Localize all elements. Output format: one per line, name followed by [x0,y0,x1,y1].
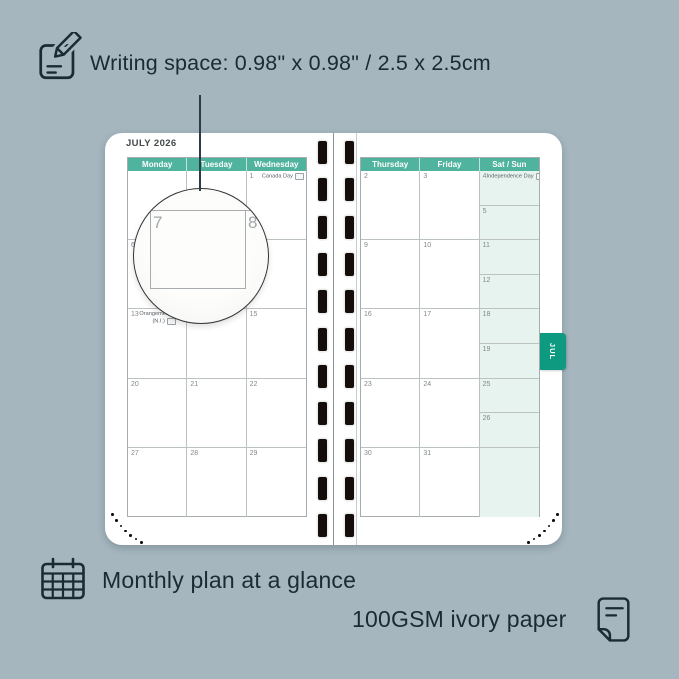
stitch-dot [129,534,132,537]
calendar-cell: 22 [247,379,306,448]
binding-slot [318,253,327,276]
month-tab-label: JUL [548,343,557,360]
weekend-cell: 4Independence Day5 [480,171,539,240]
binding-slot [318,477,327,500]
calendar-cell: 21 [187,379,246,448]
date-number: 28 [190,450,198,457]
stitch-dot [543,530,546,533]
planner-product-infographic: Writing space: 0.98" x 0.98" / 2.5 x 2.5… [0,0,679,679]
stitch-dot [111,513,114,516]
weekend-cell: 1112 [480,240,539,309]
left-day-headers: MondayTuesdayWednesday [128,158,306,171]
magnified-day-number: 7 [153,213,162,233]
date-number: 15 [250,311,258,318]
calendar-cell: 15 [247,309,306,378]
date-number: 27 [131,450,139,457]
stitch-dot [527,541,530,544]
binding-slot [318,514,327,537]
paper-quality-label: 100GSM ivory paper [352,606,567,633]
binding-slot [345,514,354,537]
month-title: JULY 2026 [126,138,177,149]
binding-slot [345,439,354,462]
binding-slot [345,477,354,500]
date-number: 11 [483,242,490,249]
day-header: Tuesday [187,158,246,171]
day-header: Thursday [361,158,420,171]
sunday-cell: 12 [480,275,539,309]
date-number: 22 [250,381,258,388]
date-number: 21 [190,381,198,388]
right-calendar-table: ThursdayFridaySat / Sun 234Independence … [360,157,540,517]
stitch-dot [115,519,118,522]
date-number: 17 [423,311,431,318]
binding-slot [318,439,327,462]
stitch-dot [552,519,555,522]
gutter-line-left [333,133,334,545]
stitch-dot [140,541,143,544]
day-header: Sat / Sun [480,158,539,171]
saturday-cell: 11 [480,240,539,275]
calendar-cell: 20 [128,379,187,448]
binding-slot [318,402,327,425]
saturday-cell: 25 [480,379,539,414]
calendar-cell: 24 [420,379,479,448]
binding-slot [345,365,354,388]
calendar-cell: 30 [361,448,420,517]
stitch-dot [124,530,127,533]
weekend-cell: 1819 [480,309,539,378]
calendar-cell: 3 [420,171,479,240]
saturday-cell: 18 [480,309,539,344]
date-number: 23 [364,381,372,388]
binding-slot [345,178,354,201]
writing-space-label: Writing space: 0.98" x 0.98" / 2.5 x 2.5… [90,51,491,76]
binding-slot [345,328,354,351]
date-number: 20 [131,381,139,388]
holiday-label: Canada Day [262,173,304,180]
date-number: 9 [364,242,368,249]
binding-slot [345,253,354,276]
holiday-label: Independence Day [487,173,539,180]
day-header: Wednesday [247,158,306,171]
right-calendar-grid: 234Independence Day591011121617181923242… [361,171,539,517]
calendar-cell: 17 [420,309,479,378]
monthly-plan-label: Monthly plan at a glance [102,567,356,594]
calendar-cell: 29 [247,448,306,517]
calendar-cell: 16 [361,309,420,378]
calendar-cell: 28 [187,448,246,517]
stitch-dot [538,534,541,537]
sunday-cell: 5 [480,206,539,240]
magnifier-circle: 7 8 [133,188,269,324]
binding-slot [318,290,327,313]
date-number: 1 [250,173,254,180]
date-number: 5 [483,208,487,215]
date-number: 31 [423,450,431,457]
binding-slot [345,290,354,313]
calendar-cell: 2 [361,171,420,240]
binding-slot [318,365,327,388]
binding-slot [318,178,327,201]
calendar-cell: 9 [361,240,420,309]
note-pencil-icon [38,32,84,84]
saturday-cell: 4Independence Day [480,171,539,206]
date-number: 24 [423,381,431,388]
calendar-cell: 10 [420,240,479,309]
magnified-grid-line [246,210,268,211]
month-tab: JUL [540,333,566,370]
date-number: 30 [364,450,372,457]
calendar-grid-icon [40,557,86,601]
calendar-cell: 31 [420,448,479,517]
calendar-cell: 23 [361,379,420,448]
date-number: 2 [364,173,368,180]
binding-slot [318,328,327,351]
date-number: 19 [483,346,491,353]
date-number: 3 [423,173,427,180]
magnified-next-day-number: 8 [248,213,257,233]
binding-slot [318,216,327,239]
holiday-flag-badge [536,173,539,180]
gutter-line-right [356,133,357,545]
date-number: 29 [250,450,258,457]
binding-slot [318,141,327,164]
day-header: Monday [128,158,187,171]
paper-sheet-icon [596,596,631,643]
date-number: 12 [483,277,491,284]
holiday-flag-badge [167,318,176,325]
stitch-dot [556,513,559,516]
day-header: Friday [420,158,479,171]
weekend-cell: 2526 [480,379,539,448]
binding-slot [345,141,354,164]
writing-space-box [150,210,246,289]
date-number: 26 [483,415,491,422]
connector-line [199,95,201,191]
right-day-headers: ThursdayFridaySat / Sun [361,158,539,171]
holiday-flag-badge [295,173,304,180]
calendar-cell: 27 [128,448,187,517]
sunday-cell: 26 [480,413,539,447]
date-number: 10 [423,242,431,249]
binding-slot [345,216,354,239]
sunday-cell: 19 [480,344,539,378]
date-number: 25 [483,381,491,388]
date-number: 13 [131,311,139,318]
weekend-cell [480,448,539,517]
binding-slot [345,402,354,425]
date-number: 16 [364,311,372,318]
date-number: 18 [483,311,491,318]
